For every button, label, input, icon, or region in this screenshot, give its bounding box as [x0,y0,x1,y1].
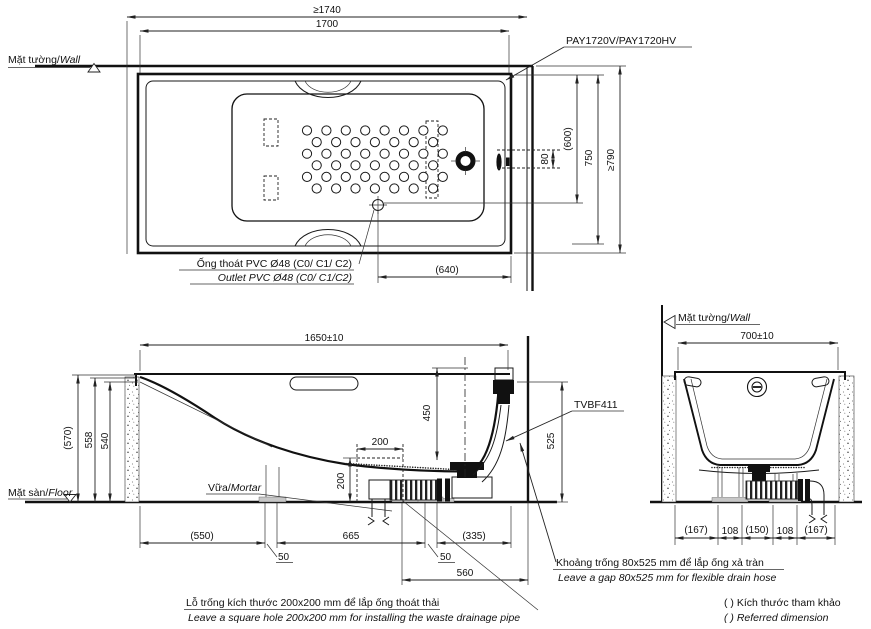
apron-column [662,376,676,502]
svg-text:Mặt tường/Wall: Mặt tường/Wall [678,312,751,324]
svg-text:450: 450 [422,404,433,421]
apron-column [839,376,854,502]
svg-text:(640): (640) [435,265,458,276]
drawing-sheet: Mặt tường/Wall [0,0,871,629]
dim-end-width: 700±10 [678,331,838,370]
svg-text:1650±10: 1650±10 [305,333,344,344]
svg-text:( ) Referred dimension: ( ) Referred dimension [724,612,829,624]
model-label: PAY1720V/PAY1720HV [506,35,692,80]
svg-text:(167): (167) [684,525,707,536]
mortar-pad [259,497,286,502]
svg-text:Khoảng trống 80x525 mm để lắp: Khoảng trống 80x525 mm để lắp ống xả trà… [556,556,764,569]
svg-text:50: 50 [278,552,290,563]
end-wall-label: Mặt tường/Wall [664,312,760,329]
handle-right [811,376,829,387]
svg-text:(335): (335) [462,531,485,542]
svg-text:Leave a gap 80x525 mm for flex: Leave a gap 80x525 mm for flexible drain… [558,572,776,584]
svg-text:558: 558 [84,431,95,448]
drain-valve-label: TVBF411 [506,399,624,441]
drain-end-icon [748,378,767,397]
dim-tub-width: 750 [584,75,598,244]
svg-text:Ống thoát PVC Ø48 (C0/ C1/ C2): Ống thoát PVC Ø48 (C0/ C1/ C2) [197,256,352,270]
svg-text:540: 540 [100,432,111,449]
grip-side [290,377,358,390]
svg-text:200: 200 [372,437,389,448]
svg-text:200: 200 [336,472,347,489]
dim-d50-left: 50 [267,544,293,563]
plan-view: Mặt tường/Wall [8,5,692,291]
svg-text:525: 525 [546,432,557,449]
svg-text:560: 560 [457,568,474,579]
tub-section-profile [134,373,510,472]
dim-h540: 540 [100,382,111,502]
dim-h450: 450 [422,368,468,460]
dim-outlet-from-end: (640) [378,265,511,277]
dim-end-bottom-chain: (167) 108 (150) 108 (167) [675,525,835,538]
svg-text:80: 80 [540,153,551,165]
dim-outlet-from-wall: (600) [563,75,577,203]
svg-text:665: 665 [343,531,360,542]
svg-text:PAY1720V/PAY1720HV: PAY1720V/PAY1720HV [566,35,676,47]
dim-d560: 560 [402,568,528,580]
svg-text:(550): (550) [190,531,213,542]
dim-overflow-offset: 80 [540,150,553,168]
svg-text:108: 108 [722,526,739,537]
svg-text:108: 108 [777,526,794,537]
svg-text:TVBF411: TVBF411 [574,399,618,411]
wall-datum-icon [664,316,675,329]
legend-referred-dimension: ( ) Kích thước tham khảo ( ) Referred di… [724,597,841,624]
svg-text:≥1740: ≥1740 [313,5,341,16]
svg-text:50: 50 [440,552,452,563]
dim-d50-right: 50 [428,544,455,563]
svg-text:Mặt sàn/Floor: Mặt sàn/Floor [8,487,73,499]
dim-h570: (570) [63,375,78,502]
tub-end-profile [674,372,846,474]
svg-text:Outlet PVC Ø48 (C0/ C1/C2): Outlet PVC Ø48 (C0/ C1/C2) [218,272,352,284]
apron-column [125,377,139,502]
svg-text:(570): (570) [63,426,74,449]
dim-section-length: 1650±10 [140,333,508,371]
technical-drawing: Mặt tường/Wall [0,0,871,629]
tub-rim-outer [138,74,511,253]
svg-text:Lỗ trống kích thước 200x200 mm: Lỗ trống kích thước 200x200 mm để lắp ốn… [186,596,439,609]
floor-label: Mặt sàn/Floor [8,487,76,502]
dim-hole-width: 200 [357,437,403,449]
plan-wall-label: Mặt tường/Wall [8,54,81,66]
svg-text:Vữa/Mortar: Vữa/Mortar [208,482,262,494]
svg-text:1700: 1700 [316,19,339,30]
dim-d550: (550) [140,531,265,543]
dim-h558: 558 [84,378,95,502]
mortar-label: Vữa/Mortar [206,482,392,511]
svg-text:( ) Kích thước tham khảo: ( ) Kích thước tham khảo [724,597,841,609]
section-view: 1650±10 (570) 558 540 450 525 [8,333,624,585]
svg-text:Leave a square hole 200x200 m: Leave a square hole 200x200 mm for insta… [188,612,520,624]
hole-note: Lỗ trống kích thước 200x200 mm để lắp ốn… [184,501,538,624]
svg-text:750: 750 [584,149,595,166]
end-view: Mặt tường/Wall [650,305,862,545]
svg-text:700±10: 700±10 [740,331,774,342]
dim-h525: 525 [517,382,568,502]
svg-text:(600): (600) [563,127,574,150]
dim-d665: 665 [277,531,425,543]
svg-text:≥790: ≥790 [606,148,617,171]
dim-niche-depth: ≥790 [606,66,620,253]
svg-text:(150): (150) [745,525,768,536]
svg-text:(167): (167) [804,525,827,536]
